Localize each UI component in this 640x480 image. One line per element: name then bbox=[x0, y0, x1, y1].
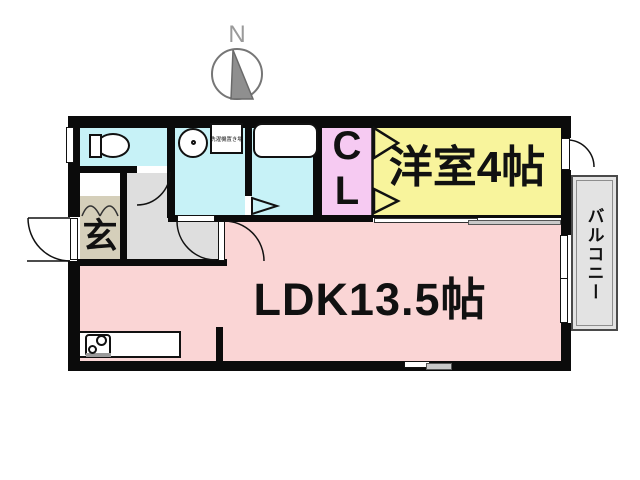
compass-north-label: N bbox=[224, 22, 250, 48]
floor-plan: 洗濯機置き場 N LDK13.5帖 洋室4帖 C L 玄 バルコニー bbox=[0, 0, 640, 480]
stove-burner-1 bbox=[96, 335, 107, 346]
wall-toilet-bottom bbox=[80, 166, 137, 173]
wall-left-lower bbox=[68, 261, 80, 371]
washing-machine-label: 洗濯機置き場 bbox=[213, 136, 239, 145]
wall-kitchen-stub bbox=[216, 327, 223, 361]
wall-entrance-hall bbox=[120, 171, 127, 266]
wall-washroom-bottom-right bbox=[215, 215, 373, 222]
stove-burner-2 bbox=[88, 345, 97, 354]
toilet-tank bbox=[89, 134, 102, 158]
ldk-door-leaf bbox=[218, 221, 225, 261]
compass-needle-icon bbox=[231, 50, 253, 99]
wall-toilet-washroom bbox=[167, 128, 175, 218]
toilet-window bbox=[66, 127, 74, 163]
balcony-door-leaf bbox=[561, 138, 570, 170]
ldk-balcony-window bbox=[560, 235, 568, 323]
wall-top bbox=[68, 116, 571, 128]
washing-machine-space: 洗濯機置き場 bbox=[210, 123, 243, 154]
entrance-label: 玄 bbox=[80, 214, 120, 258]
entrance-door-arc bbox=[28, 218, 70, 261]
balcony-door-arc bbox=[569, 140, 594, 167]
wall-washroom-bottom-left bbox=[168, 215, 177, 222]
western-room-label: 洋室4帖 bbox=[373, 140, 561, 196]
closet-label-l: L bbox=[322, 168, 372, 214]
shoe-storage bbox=[80, 173, 120, 197]
sliding-door-panel-2 bbox=[468, 220, 561, 225]
bathtub bbox=[253, 123, 318, 158]
wall-right-a bbox=[561, 116, 571, 138]
wall-washroom-bathroom bbox=[245, 128, 252, 196]
washbasin-drain bbox=[191, 140, 196, 145]
compass-circle bbox=[212, 49, 262, 99]
wall-right-c bbox=[561, 323, 571, 371]
ldk-label: LDK13.5帖 bbox=[225, 272, 515, 326]
ldk-balcony-window-tick bbox=[560, 278, 568, 279]
ldk-bottom-window-pane-2 bbox=[426, 363, 452, 370]
sliding-door-panel-1 bbox=[374, 218, 478, 223]
balcony-label: バルコニー bbox=[581, 190, 607, 318]
wall-right-b bbox=[561, 170, 571, 235]
wall-bottom bbox=[68, 361, 571, 371]
wall-hall-bottom bbox=[77, 259, 227, 266]
washroom-door-opening bbox=[177, 215, 215, 222]
closet-label-c: C bbox=[322, 124, 372, 168]
ldk-floor-upper bbox=[225, 222, 561, 266]
entrance-door-leaf bbox=[70, 218, 78, 260]
